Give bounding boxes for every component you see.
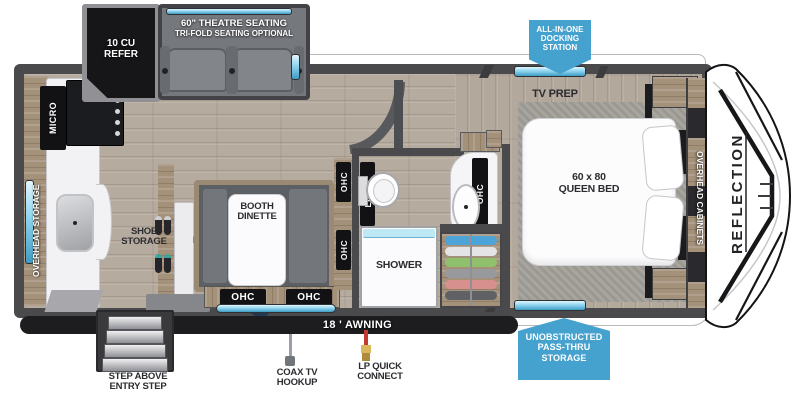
overhead-storage-label: OVERHEAD STORAGE [29, 164, 45, 298]
queen-bed-label: 60 x 80 QUEEN BED [534, 172, 644, 195]
microwave-icon: MICRO [40, 86, 66, 150]
lp-connector-icon [362, 353, 370, 361]
pillow-icon [641, 124, 684, 191]
entry-step-label: STEP ABOVE ENTRY STEP [90, 372, 186, 393]
shoe-icon [155, 254, 162, 273]
bedroom-step [486, 130, 502, 148]
dinette-bench [203, 189, 227, 283]
cooktop-knob-icon [115, 120, 120, 125]
cooktop-knob-icon [115, 131, 120, 136]
micro-label: MICRO [48, 102, 58, 134]
ohc-label-plate: OHC [336, 230, 351, 270]
booth-dinette-label: BOOTH DINETTE [229, 202, 285, 223]
awning-label: 18 ' AWNING [323, 319, 392, 331]
door-swing-icon [344, 78, 406, 154]
lp-label: LP QUICK CONNECT [336, 362, 424, 383]
lp-connector-icon [361, 345, 371, 353]
bedroom-window-bottom-icon [514, 300, 586, 311]
shower-label: SHOWER [366, 260, 432, 272]
theatre-seat-icon [233, 48, 293, 92]
theatre-seating-label: 60" THEATRE SEATING TRI-FOLD SEATING OPT… [160, 19, 308, 39]
shoe-icon [164, 254, 171, 273]
coax-label: COAX TV HOOKUP [256, 368, 338, 389]
bathroom-wall [352, 148, 464, 156]
bedroom-divider-wall [502, 144, 510, 308]
passthru-storage-badge: UNOBSTRUCTED PASS-THRU STORAGE [518, 318, 610, 380]
drain-icon [464, 205, 468, 209]
slide-window-icon [166, 8, 292, 15]
entry-steps-icon [96, 310, 174, 372]
lp-connector-icon [364, 330, 368, 346]
tv-prep-label: TV PREP [520, 88, 590, 100]
theatre-seat-icon [167, 48, 227, 92]
pillow-icon [641, 194, 684, 261]
brand-text: REFLECTION [729, 133, 746, 254]
cooktop-knob-icon [115, 109, 120, 114]
cupholder-icon [162, 68, 168, 74]
toilet-bowl-icon [373, 179, 395, 203]
refer-label: 10 CU REFER [92, 38, 150, 60]
living-window-icon [216, 304, 336, 313]
dinette-bench [289, 189, 327, 283]
awning-bar: 18 ' AWNING [20, 316, 518, 334]
faucet-icon [73, 221, 77, 225]
floorplan-canvas: TV PREP 60 x 80 QUEEN BED OVERHEAD CABIN… [0, 0, 800, 400]
closet-rod-icon [470, 234, 472, 306]
cupholder-icon [229, 68, 235, 74]
coax-connector-icon [285, 356, 295, 366]
wardrobe-wall [440, 224, 510, 232]
front-cap: REFLECTION [700, 56, 796, 336]
ohc-label-plate: OHC [336, 162, 351, 202]
slide-end-window-icon [291, 54, 300, 80]
shower-glass-icon [363, 229, 435, 238]
entry-landing [44, 290, 103, 312]
